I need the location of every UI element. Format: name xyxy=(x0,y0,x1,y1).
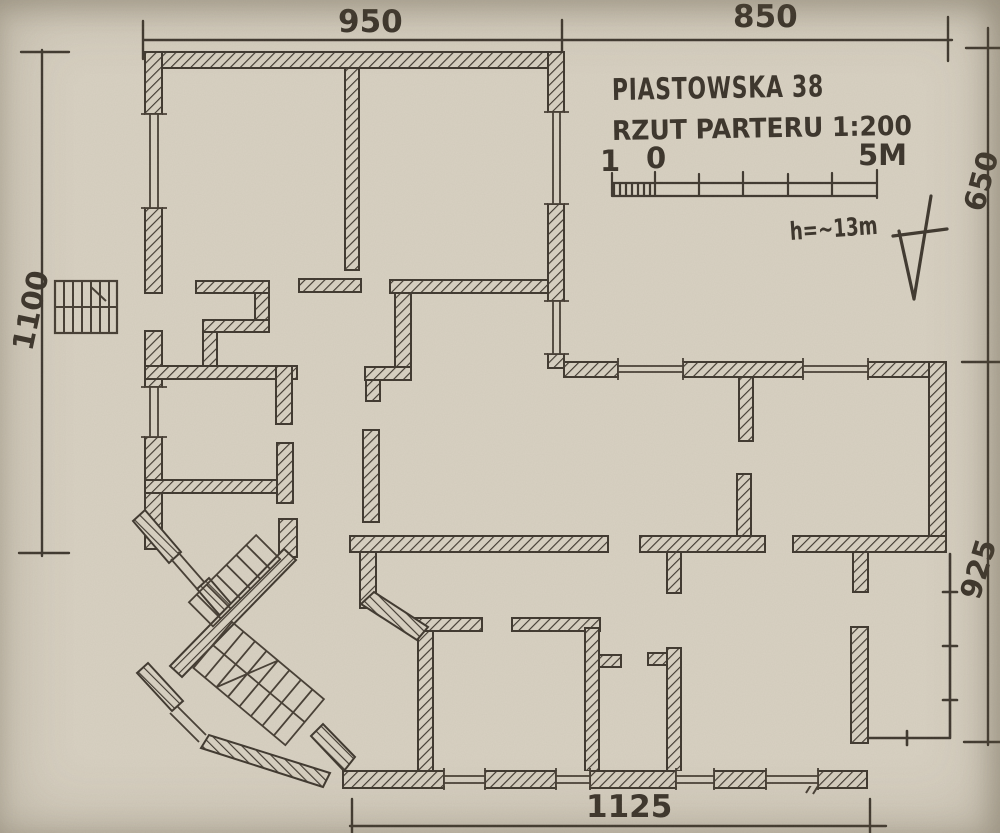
scanned-floor-plan-sheet: 950 850 1100 650 925 1125 PIASTOWSKA 38 … xyxy=(0,0,1000,833)
paper-grain-texture xyxy=(0,0,1000,833)
floor-plan-drawing: 950 850 1100 650 925 1125 PIASTOWSKA 38 … xyxy=(0,0,1000,833)
